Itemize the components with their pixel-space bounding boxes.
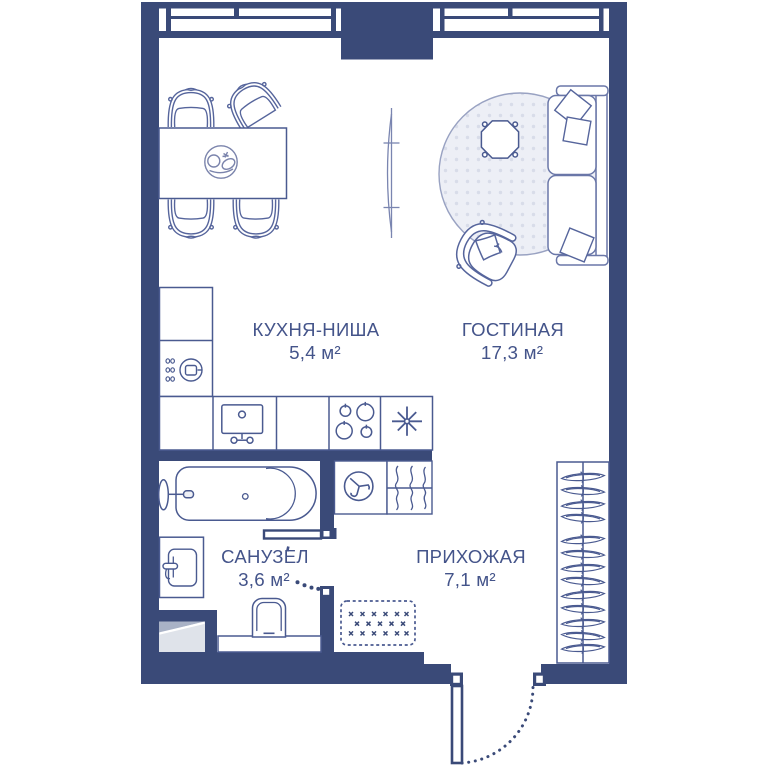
svg-text:ГОСТИНАЯ: ГОСТИНАЯ [462, 319, 564, 340]
svg-text:КУХНЯ-НИША: КУХНЯ-НИША [253, 319, 380, 340]
svg-text:17,3 м²: 17,3 м² [481, 342, 543, 363]
svg-text:ПРИХОЖАЯ: ПРИХОЖАЯ [416, 546, 526, 567]
svg-text:3,6 м²: 3,6 м² [238, 569, 290, 590]
svg-text:7,1 м²: 7,1 м² [444, 569, 496, 590]
svg-text:САНУЗЕЛ: САНУЗЕЛ [221, 546, 309, 567]
svg-text:5,4 м²: 5,4 м² [289, 342, 341, 363]
